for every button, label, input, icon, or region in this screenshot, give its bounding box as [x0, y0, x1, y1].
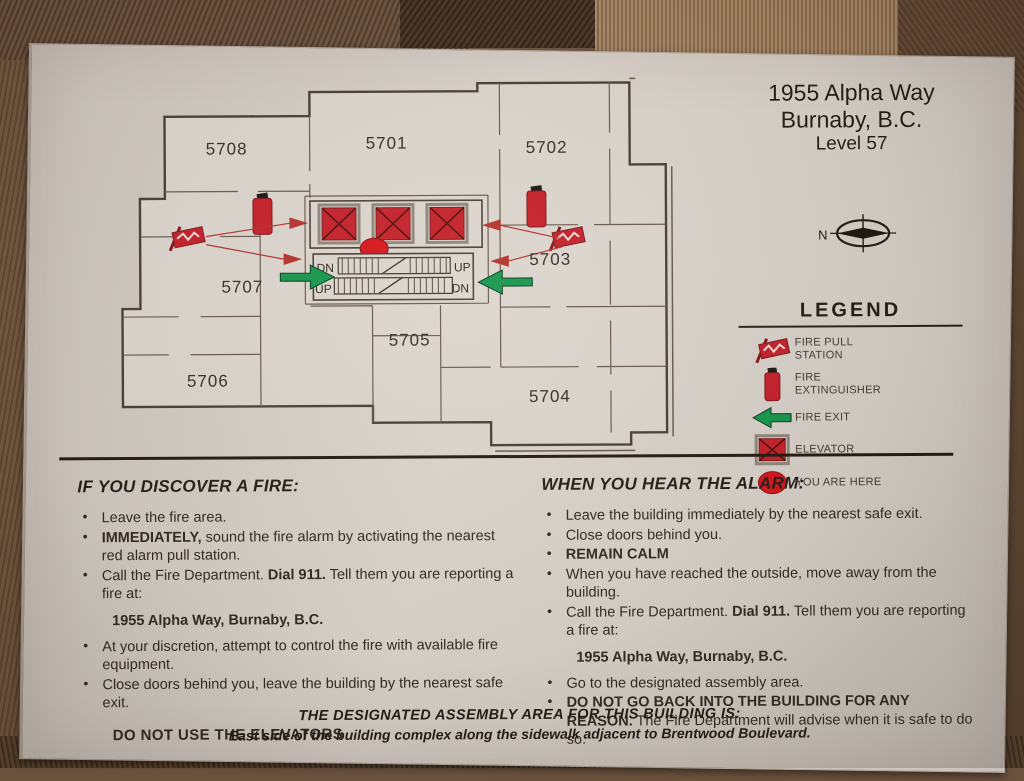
list-item: •IMMEDIATELY, sound the fire alarm by ac… — [78, 527, 516, 566]
sign-content: 1955 Alpha Way Burnaby, B.C. Level 57 N — [25, 48, 1011, 767]
level-label: Level 57 — [726, 133, 978, 157]
elevator-icon — [749, 434, 795, 466]
legend: LEGEND FIRE PULL STATION FIRE EXTINGUISH… — [734, 299, 967, 500]
list-item: •At your discretion, attempt to control … — [78, 636, 516, 675]
legend-title: LEGEND — [738, 299, 962, 328]
compass-north-label: N — [818, 227, 827, 242]
section-heading: IF YOU DISCOVER A FIRE: — [77, 475, 515, 497]
room-label: 5708 — [206, 139, 248, 158]
list-item: •Call the Fire Department. Dial 911. Tel… — [78, 565, 516, 604]
report-address: 1955 Alpha Way, Burnaby, B.C. — [576, 647, 974, 665]
address-line-1: 1955 Alpha Way — [725, 79, 977, 107]
room-label: 5706 — [187, 372, 229, 391]
list-item: •When you have reached the outside, move… — [542, 563, 974, 602]
legend-item: ELEVATOR — [749, 433, 967, 466]
stair-label: DN — [452, 281, 469, 295]
fire-pull-station-icon — [749, 336, 795, 364]
list-item: •Close doors behind you. — [542, 524, 974, 545]
floor-plan: DN UP UP DN — [109, 74, 696, 461]
bullet-list: •Leave the fire area. •IMMEDIATELY, soun… — [78, 507, 516, 604]
stair-label: UP — [454, 260, 471, 274]
report-address: 1955 Alpha Way, Burnaby, B.C. — [112, 611, 516, 629]
room-label: 5704 — [529, 387, 571, 406]
stairwell: DN UP UP DN — [313, 253, 473, 300]
wall-texture — [400, 0, 615, 48]
fire-extinguisher-icon — [527, 185, 546, 227]
legend-label: FIRE EXIT — [795, 411, 890, 424]
list-item: •Go to the designated assembly area. — [542, 672, 974, 693]
legend-label: FIRE EXTINGUISHER — [795, 371, 890, 397]
room-label: 5705 — [389, 330, 431, 349]
address-line-2: Burnaby, B.C. — [725, 106, 977, 134]
compass-rose-icon: N — [796, 207, 916, 260]
room-label: 5707 — [221, 277, 263, 296]
fire-extinguisher-icon — [749, 368, 795, 402]
room-label: 5703 — [529, 250, 571, 269]
building-address-block: 1955 Alpha Way Burnaby, B.C. Level 57 — [725, 79, 977, 157]
legend-label: FIRE PULL STATION — [795, 336, 890, 362]
bullet-list: •At your discretion, attempt to control … — [78, 636, 516, 713]
list-item: •Leave the building immediately by the n… — [542, 505, 974, 526]
legend-item: FIRE EXIT — [749, 405, 967, 430]
room-label: 5701 — [366, 134, 408, 153]
room-label: 5702 — [526, 138, 568, 157]
list-item: •Call the Fire Department. Dial 911. Tel… — [542, 601, 974, 640]
legend-item: FIRE EXTINGUISHER — [749, 367, 967, 402]
legend-item: FIRE PULL STATION — [749, 335, 967, 364]
fire-evacuation-sign: 1955 Alpha Way Burnaby, B.C. Level 57 N — [19, 43, 1015, 773]
list-item: •REMAIN CALM — [542, 544, 974, 565]
assembly-area-block: THE DESIGNATED ASSEMBLY AREA FOR THIS BU… — [29, 703, 1011, 745]
list-item: •Leave the fire area. — [78, 507, 516, 528]
section-heading: WHEN YOU HEAR THE ALARM: — [541, 473, 973, 495]
bullet-list: •Leave the building immediately by the n… — [542, 505, 975, 641]
discover-fire-section: IF YOU DISCOVER A FIRE: •Leave the fire … — [77, 475, 516, 744]
fire-exit-arrow-icon — [749, 406, 795, 430]
